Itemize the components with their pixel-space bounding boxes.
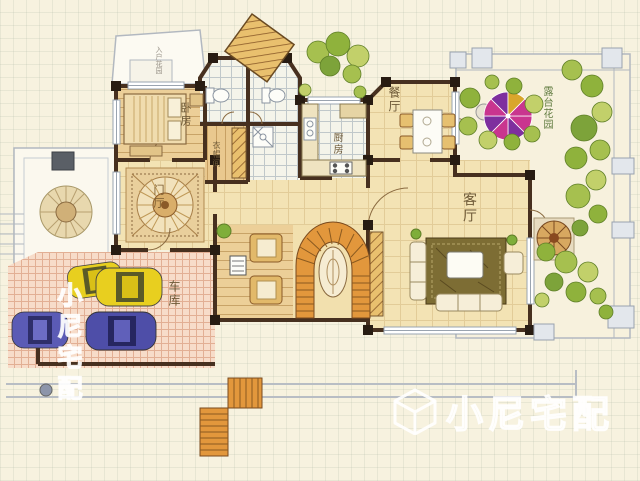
brand-watermark: 小尼宅配 [392, 384, 614, 438]
label-living: 客厅 [462, 192, 476, 224]
wardrobe [232, 128, 246, 178]
brand-watermark-text: 小尼宅配 [446, 384, 614, 438]
car-yellow-2 [96, 268, 162, 306]
side-watermark-text: 小尼宅配 [50, 282, 86, 406]
lower-stairs [200, 378, 262, 456]
label-cloakroom: 衣帽间 [212, 141, 220, 168]
foyer-medallion [126, 168, 204, 242]
porch-medallion [40, 186, 92, 238]
label-dining: 餐厅 [388, 86, 400, 114]
car-blue-2 [86, 312, 156, 350]
label-terrace-garden: 露台花园 [541, 86, 551, 130]
floorplan-page: 卧房 衣帽间 厨房 餐厅 客厅 门厅 车库 露台花园 入户花园 小尼宅配 小尼宅… [0, 0, 640, 481]
cube-icon [392, 387, 438, 435]
label-foyer: 门厅 [153, 184, 164, 210]
label-entry-note: 入户花园 [155, 46, 162, 74]
label-kitchen: 厨房 [331, 132, 341, 156]
label-bedroom: 卧房 [180, 102, 191, 128]
label-garage: 车库 [168, 280, 180, 308]
